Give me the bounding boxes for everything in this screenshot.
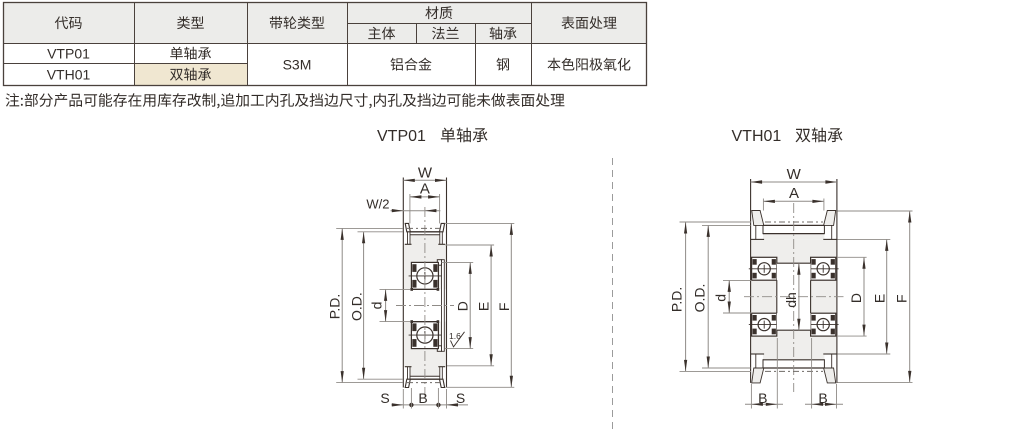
svg-text:1.6: 1.6 [449, 331, 461, 341]
svg-text:S: S [456, 390, 465, 406]
svg-text:W: W [787, 166, 802, 183]
svg-text:B: B [758, 390, 767, 406]
svg-text:O.D.: O.D. [348, 292, 364, 321]
svg-text:A: A [789, 185, 799, 202]
svg-text:VTH01: VTH01 [732, 128, 782, 145]
svg-text:E: E [871, 294, 887, 303]
svg-text:d: d [712, 294, 728, 302]
svg-text:P.D.: P.D. [668, 287, 684, 312]
svg-text:F: F [893, 294, 909, 303]
svg-text:W: W [418, 164, 433, 181]
svg-text:B: B [818, 390, 827, 406]
svg-text:W/2: W/2 [366, 197, 389, 212]
svg-text:F: F [496, 303, 512, 312]
svg-text:B: B [418, 390, 427, 406]
svg-text:D: D [455, 301, 471, 311]
svg-text:E: E [475, 302, 491, 311]
svg-text:dh: dh [783, 292, 799, 308]
svg-text:A: A [420, 181, 430, 198]
svg-text:P.D.: P.D. [327, 294, 343, 319]
svg-text:S: S [380, 390, 389, 406]
svg-text:VTP01: VTP01 [47, 46, 90, 62]
svg-text:O.D.: O.D. [691, 284, 707, 313]
svg-text:d: d [369, 302, 385, 310]
svg-text:VTP01: VTP01 [377, 128, 426, 145]
svg-text:D: D [848, 293, 864, 303]
svg-text:S3M: S3M [283, 57, 312, 73]
svg-text:VTH01: VTH01 [47, 67, 91, 83]
